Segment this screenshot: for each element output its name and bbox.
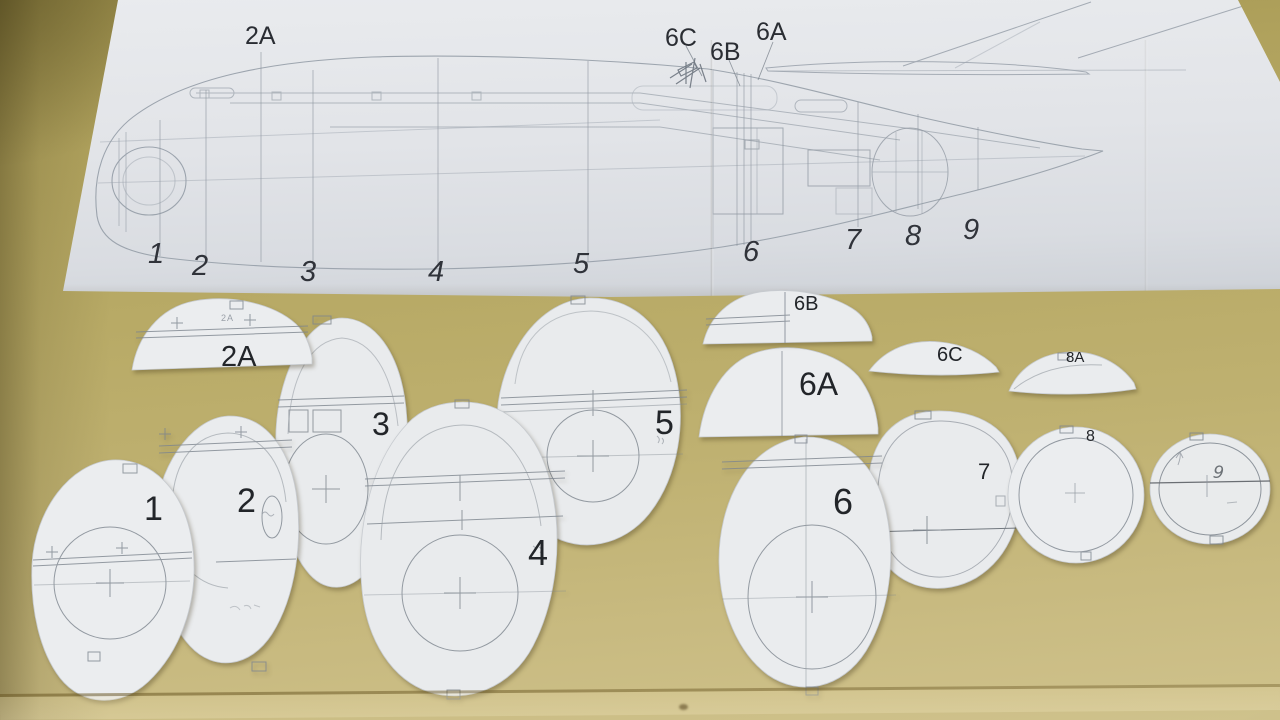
- former-label-6b: 6B: [794, 294, 818, 314]
- plan-callout-6b: 6B: [710, 40, 741, 65]
- former-label-3: 3: [372, 408, 390, 440]
- former-label-9: 9: [1212, 464, 1225, 482]
- plan-station-label-6: 6: [743, 238, 759, 267]
- plan-station-label-2: 2: [192, 252, 208, 281]
- structure-details: [713, 128, 948, 216]
- former-label-6: 6: [833, 484, 853, 520]
- former-label-2a: 2A: [221, 343, 256, 372]
- former-label-2: 2: [237, 484, 256, 518]
- former-cutout-8: [1006, 425, 1146, 565]
- former-label-8: 8: [1086, 429, 1095, 445]
- fuselage-outline: [96, 56, 1103, 269]
- former-label-7: 7: [978, 461, 990, 483]
- stringer-lines: [190, 86, 1040, 160]
- former-label-5: 5: [655, 406, 674, 440]
- plan-station-label-7: 7: [845, 226, 861, 255]
- plan-callout-6a: 6A: [756, 20, 787, 45]
- former-cutout-6c: [866, 335, 1004, 377]
- former-label-4: 4: [528, 535, 548, 571]
- former-cutout-6a: [696, 344, 880, 442]
- plan-station-label-5: 5: [573, 250, 589, 279]
- former-label-6c: 6C: [937, 345, 963, 365]
- tail-surfaces: [766, 2, 1256, 75]
- former-label-8a: 8A: [1066, 350, 1084, 365]
- former-label-6a: 6A: [799, 368, 838, 400]
- plan-station-label-8: 8: [905, 222, 921, 251]
- plan-sheet: 1 2 3 4 5 6 7 8 9 2A 6C 6B 6A: [0, 0, 1280, 302]
- former-cutout-6: [714, 433, 904, 703]
- plan-callout-6c: 6C: [665, 26, 697, 51]
- plan-station-label-3: 3: [300, 258, 316, 287]
- former-cutout-6b: [700, 287, 877, 348]
- plan-station-label-1: 1: [148, 240, 164, 269]
- dark-speck: [679, 704, 688, 710]
- plan-station-label-9: 9: [963, 216, 979, 245]
- former-cutout-9: [1148, 432, 1273, 546]
- former-small-print-2a: 2A: [221, 314, 234, 323]
- former-cutout-1: [28, 456, 198, 708]
- photo-model-plans-scene: 1 2 3 4 5 6 7 8 9 2A 6C 6B 6A: [0, 0, 1280, 720]
- datum-lines: [98, 120, 1085, 183]
- alignment-notch: [252, 662, 266, 671]
- plan-callout-2a: 2A: [245, 24, 276, 49]
- former-label-1: 1: [144, 492, 163, 526]
- plan-station-label-4: 4: [428, 258, 444, 287]
